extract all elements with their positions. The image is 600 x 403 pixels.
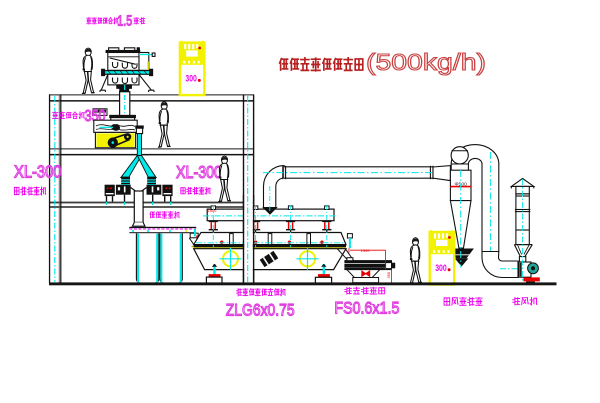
svg-text:ZLG6x0.75: ZLG6x0.75 — [226, 301, 295, 320]
svg-text:1.5: 1.5 — [117, 13, 132, 29]
svg-text:XL-300: XL-300 — [14, 161, 62, 181]
svg-text:FS0.6x1.5: FS0.6x1.5 — [334, 299, 399, 318]
svg-text:1500: 1500 — [361, 248, 371, 253]
svg-text:(500kg/h): (500kg/h) — [366, 49, 486, 75]
svg-text:350: 350 — [386, 271, 391, 278]
svg-text:XL-300: XL-300 — [176, 162, 222, 182]
